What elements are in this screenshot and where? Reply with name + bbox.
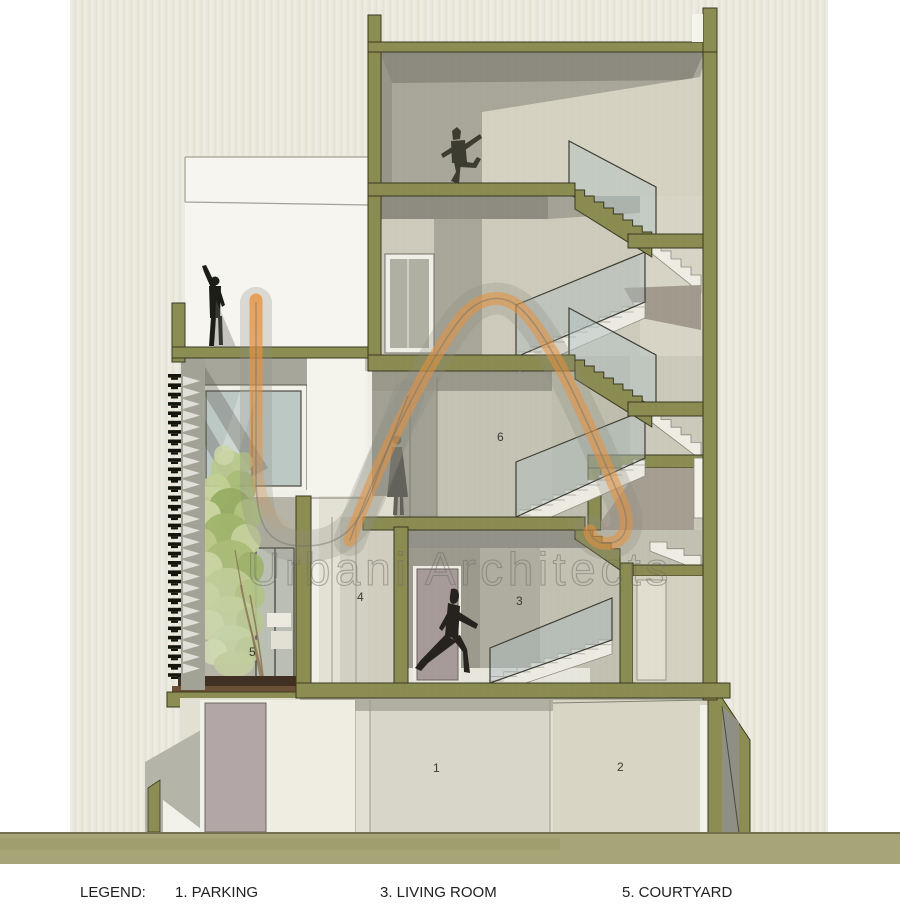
svg-text:5: 5 — [249, 645, 256, 659]
svg-text:5. COURTYARD: 5. COURTYARD — [622, 884, 732, 900]
svg-text:1. PARKING: 1. PARKING — [175, 884, 258, 900]
svg-text:1: 1 — [433, 761, 440, 775]
svg-text:LEGEND:: LEGEND: — [80, 884, 146, 900]
svg-text:6: 6 — [497, 430, 504, 444]
svg-text:3. LIVING ROOM: 3. LIVING ROOM — [380, 884, 497, 900]
svg-text:Urbani Architects: Urbani Architects — [247, 543, 673, 595]
svg-text:3: 3 — [516, 594, 523, 608]
svg-text:2: 2 — [617, 760, 624, 774]
